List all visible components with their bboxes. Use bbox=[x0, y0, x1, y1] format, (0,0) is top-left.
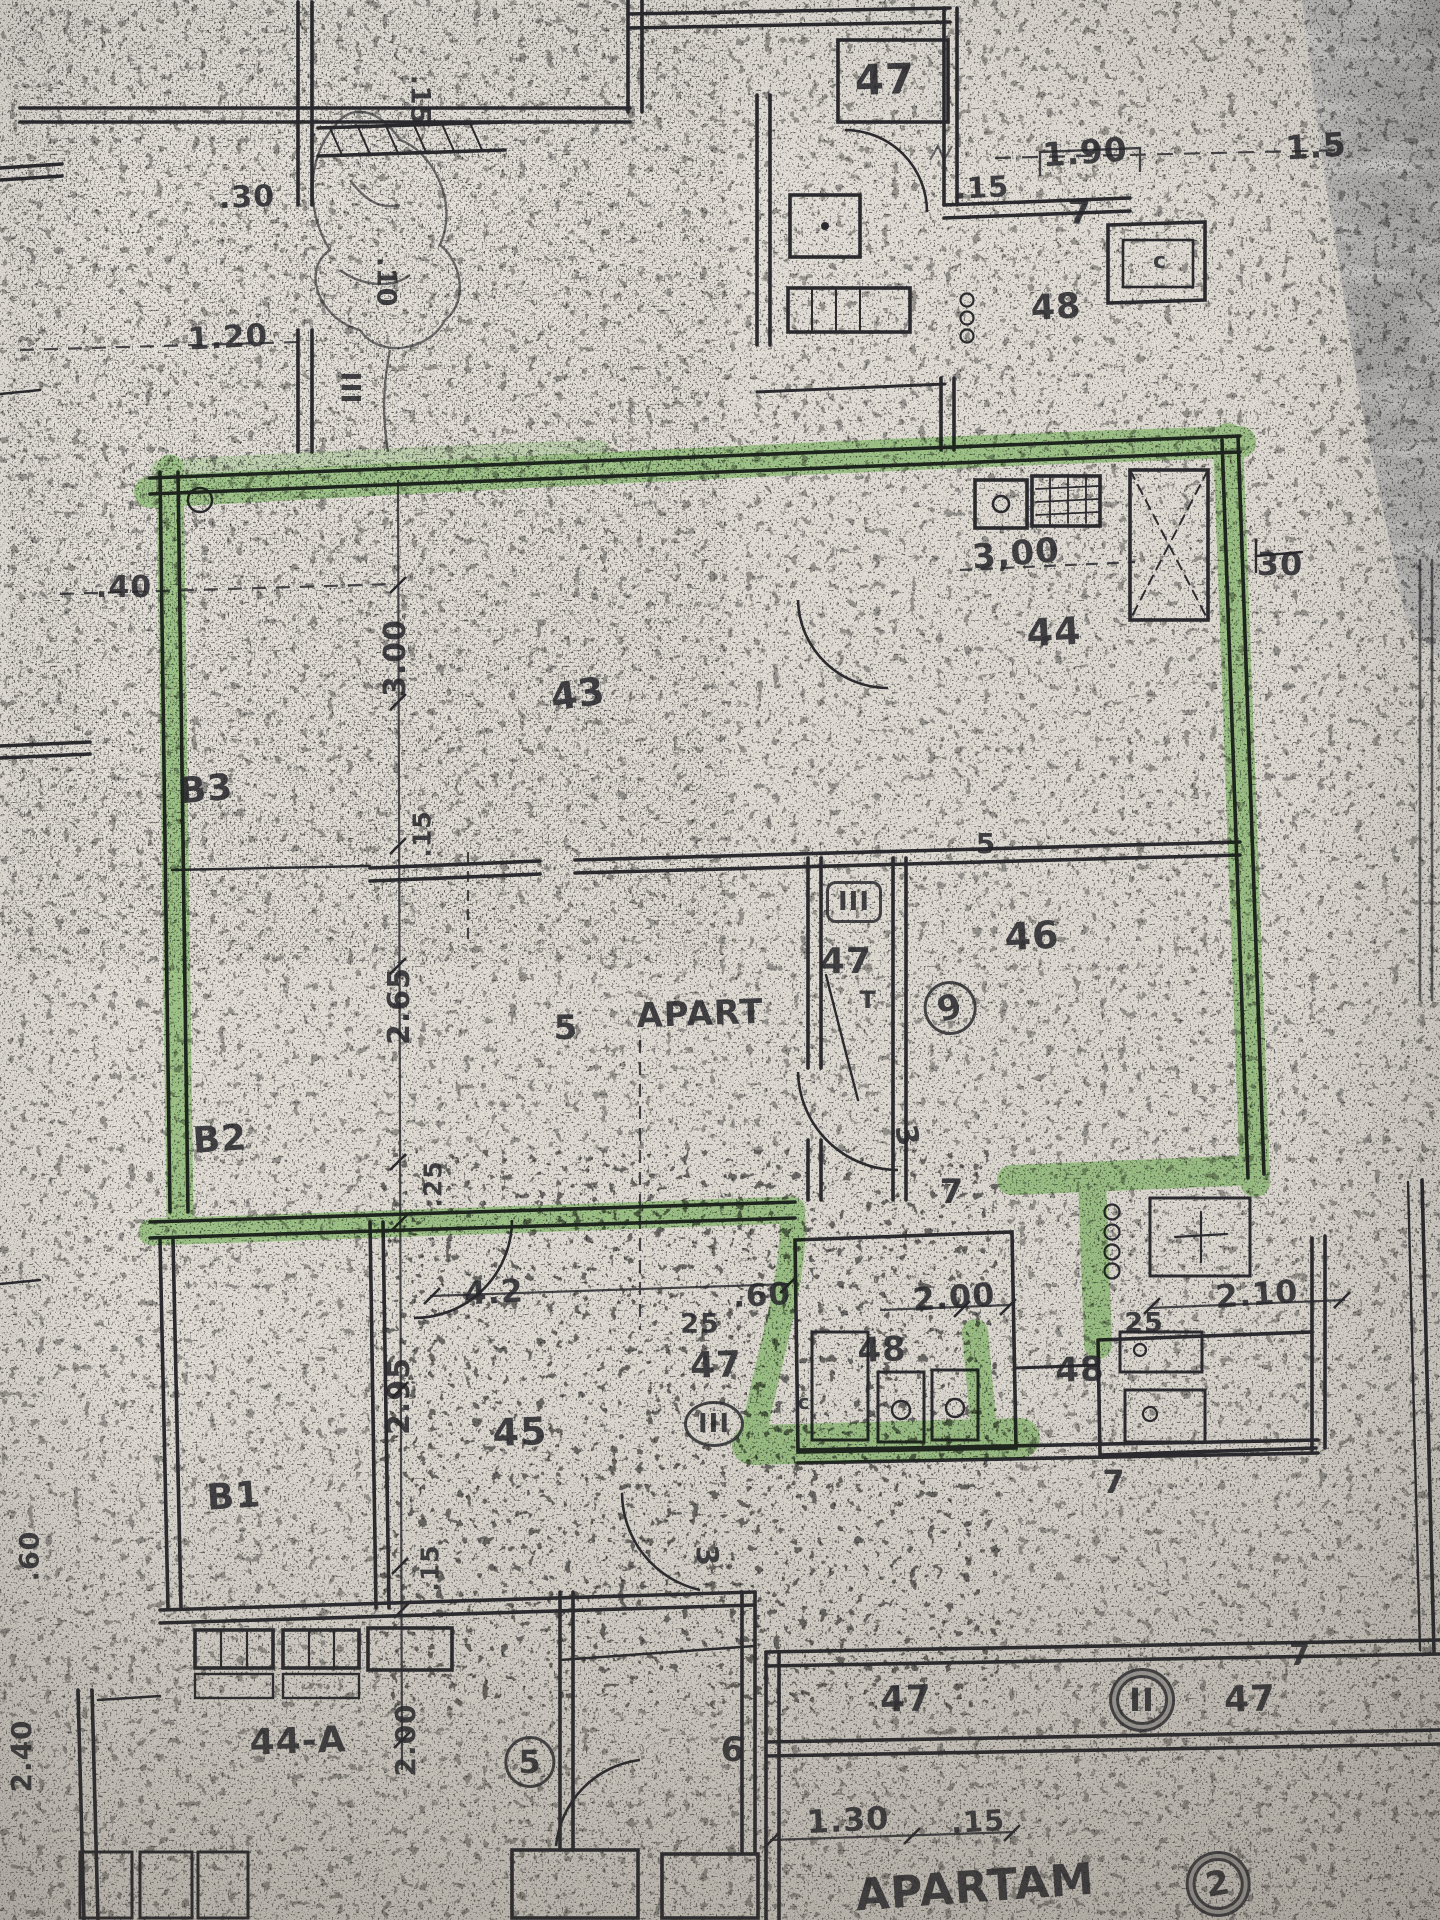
room-label-47-mid: 47 bbox=[820, 944, 872, 980]
room-label-46: 46 bbox=[1004, 916, 1061, 957]
marker-iii-bottom: III bbox=[684, 1401, 744, 1447]
dim-7-br: 7 bbox=[1289, 1641, 1311, 1671]
dim-2-40-vert-left: 2.40 bbox=[8, 1719, 36, 1792]
dim-025-vert: .25 bbox=[421, 1160, 446, 1207]
dim-7-mid: 7 bbox=[940, 1175, 965, 1209]
dim-2-00-vert-left: 2.00 bbox=[392, 1703, 420, 1776]
dim-6: 6 bbox=[721, 1733, 746, 1767]
photo-canvas: 471.901.5.15748c.30.15.101.20III3,003044… bbox=[0, 0, 1440, 1920]
dim-015-vert-mid: .15 bbox=[410, 810, 435, 857]
dim-5-small: 5 bbox=[976, 830, 996, 858]
dim-3-door: 3 bbox=[889, 1123, 922, 1150]
room-label-b2: B2 bbox=[192, 1120, 249, 1160]
marker-iii-top: III bbox=[337, 371, 364, 404]
dim-030: .30 bbox=[218, 182, 275, 214]
dim-3-00-kitchen: 3,00 bbox=[971, 533, 1062, 575]
dim-015-bottom: .15 bbox=[950, 1806, 1006, 1838]
dim-2-95-vert: 2.95 bbox=[385, 1357, 415, 1435]
room-label-48-right: 48 bbox=[1055, 1352, 1105, 1388]
room-label-48-left: 48 bbox=[857, 1332, 907, 1368]
room-label-44a: 44-A bbox=[249, 1722, 347, 1761]
marker-iii-mid: III bbox=[826, 881, 882, 923]
dim-25-left: 25 bbox=[680, 1311, 720, 1338]
dim-010-vert: .10 bbox=[373, 257, 400, 308]
dim-1-30: 1.30 bbox=[806, 1802, 891, 1838]
dim-3-00-vert: 3.00 bbox=[381, 619, 411, 697]
room-label-47-bottom: 47 bbox=[689, 1347, 742, 1385]
room-label-48-top: 48 bbox=[1030, 289, 1082, 327]
marker-2-circle: 2 bbox=[1189, 1854, 1248, 1914]
marker-9-circle: 9 bbox=[918, 975, 983, 1041]
fixture-c-bath: c bbox=[798, 1392, 811, 1412]
dim-7-bath: 7 bbox=[1102, 1466, 1125, 1498]
dim-30-right: 30 bbox=[1257, 548, 1304, 580]
room-label-b3: B3 bbox=[177, 770, 234, 811]
room-label-47-br-left: 47 bbox=[879, 1681, 932, 1719]
dim-2-10-bath: 2.10 bbox=[1215, 1275, 1300, 1313]
apartment-text-t: T bbox=[859, 988, 876, 1012]
dim-3-lower: 3 bbox=[690, 1544, 722, 1568]
dim-040: .40 bbox=[96, 573, 152, 603]
room-label-47-br-right: 47 bbox=[1223, 1681, 1276, 1719]
apartment-number: 5 bbox=[554, 1011, 579, 1045]
dim-1-90: 1.90 bbox=[1041, 133, 1129, 172]
room-label-47-top: 47 bbox=[854, 58, 916, 102]
dim-7-top: 7 bbox=[1068, 196, 1092, 229]
dim-1-5: 1.5 bbox=[1284, 127, 1348, 164]
dim-060-bottom: .60 bbox=[732, 1279, 791, 1313]
dim-015-top: .15 bbox=[954, 172, 1010, 204]
labels-layer: 471.901.5.15748c.30.15.101.20III3,003044… bbox=[0, 0, 1440, 1920]
dim-2-00-bath: 2.00 bbox=[912, 1278, 997, 1316]
dim-015-vert-low: .15 bbox=[418, 1544, 443, 1591]
dim-1-20: 1.20 bbox=[187, 320, 269, 355]
dim-060-vert-left: .60 bbox=[17, 1531, 44, 1582]
dim-25-right: 25 bbox=[1124, 1310, 1164, 1337]
dim-4-2: 4.2 bbox=[463, 1274, 524, 1309]
room-label-b1: B1 bbox=[206, 1477, 263, 1517]
marker-ii-circle: II bbox=[1116, 1675, 1168, 1725]
marker-5-circle: 5 bbox=[504, 1736, 555, 1788]
dim-015-vert-top: .15 bbox=[407, 75, 434, 126]
apartment-text: APART bbox=[636, 995, 764, 1033]
apartment-2-text: APARTAM bbox=[854, 1858, 1096, 1919]
room-label-43: 43 bbox=[548, 671, 608, 716]
dim-2-65-vert: 2.65 bbox=[385, 967, 415, 1045]
room-label-45: 45 bbox=[492, 1412, 548, 1452]
fixture-c-top: c bbox=[1153, 251, 1167, 273]
room-label-44: 44 bbox=[1026, 612, 1083, 653]
